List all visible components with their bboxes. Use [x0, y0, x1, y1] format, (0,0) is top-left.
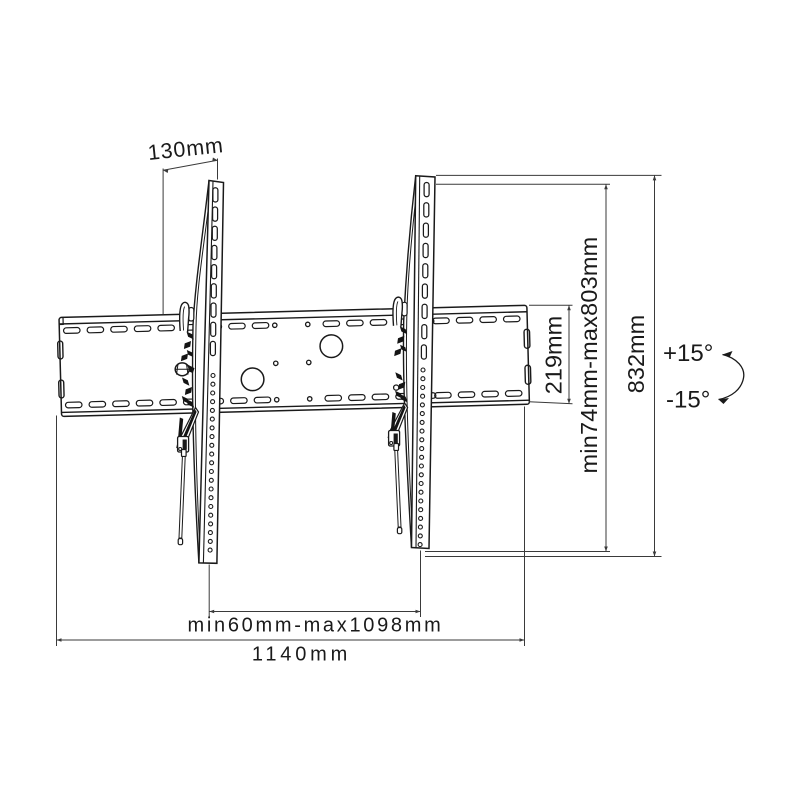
- svg-text:219mm: 219mm: [541, 316, 567, 394]
- svg-text:+15°: +15°: [663, 340, 713, 367]
- svg-text:832mm: 832mm: [623, 315, 649, 393]
- svg-text:min60mm-max1098mm: min60mm-max1098mm: [188, 615, 444, 637]
- svg-text:min74mm-max803mm: min74mm-max803mm: [576, 237, 602, 474]
- svg-text:1140mm: 1140mm: [252, 644, 351, 666]
- svg-text:-15°: -15°: [666, 387, 710, 414]
